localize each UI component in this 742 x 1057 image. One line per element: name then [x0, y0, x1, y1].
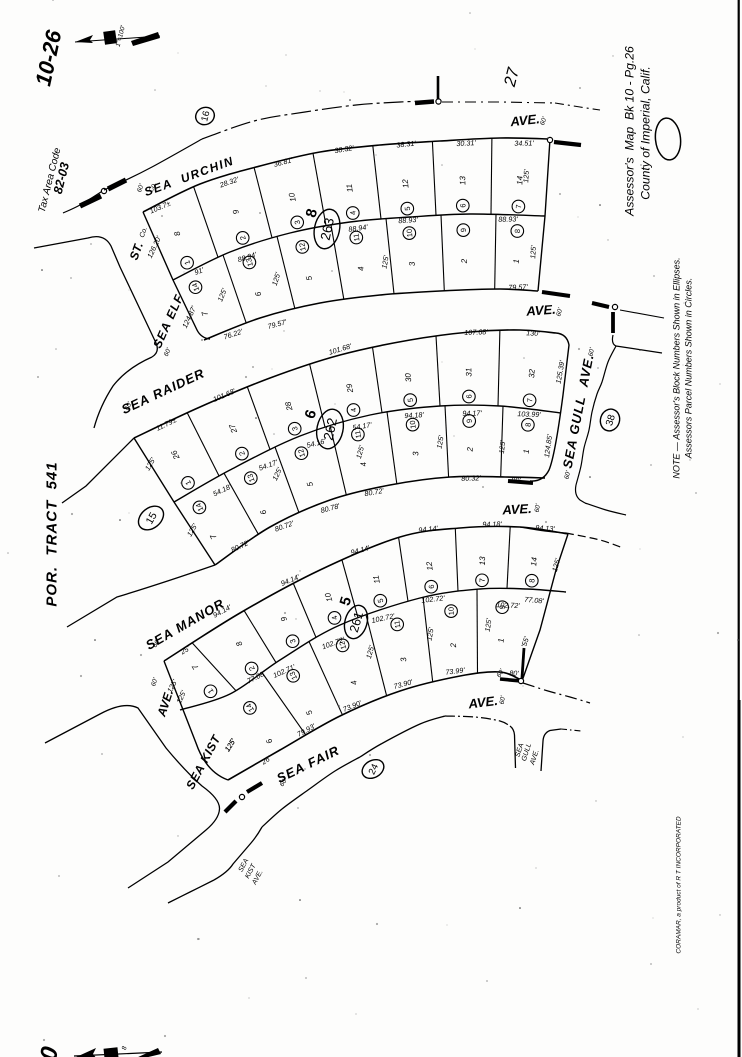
- svg-text:11: 11: [392, 620, 402, 629]
- svg-text:94.17': 94.17': [462, 408, 482, 417]
- svg-text:6: 6: [465, 394, 474, 398]
- svg-text:7: 7: [525, 398, 534, 403]
- svg-text:7: 7: [478, 578, 487, 582]
- svg-text:77.08': 77.08': [524, 595, 545, 606]
- svg-text:CORAMAR, a product of R T INCO: CORAMAR, a product of R T INCORPORATED: [675, 816, 682, 953]
- svg-text:12: 12: [297, 242, 307, 252]
- svg-text:79.57': 79.57': [508, 282, 528, 292]
- svg-text:11: 11: [371, 574, 381, 584]
- svg-text:94.13': 94.13': [535, 523, 556, 533]
- svg-text:88.93': 88.93': [498, 214, 518, 223]
- svg-text:7: 7: [514, 204, 523, 209]
- svg-text:6: 6: [427, 584, 436, 589]
- svg-text:AVE.: AVE.: [509, 111, 541, 129]
- svg-text:32: 32: [527, 368, 537, 378]
- svg-text:10: 10: [405, 229, 415, 238]
- svg-text:125': 125': [528, 244, 538, 259]
- svg-text:130': 130': [526, 328, 540, 338]
- svg-text:31: 31: [464, 368, 473, 377]
- svg-text:11: 11: [345, 183, 355, 192]
- svg-text:30: 30: [403, 372, 413, 382]
- svg-text:POR. TRACT 541: POR. TRACT 541: [43, 461, 60, 606]
- svg-text:10: 10: [408, 420, 418, 429]
- svg-text:AVE.: AVE.: [501, 501, 532, 518]
- svg-text:6: 6: [458, 203, 467, 207]
- svg-text:NOTE — Assessor's Block Number: NOTE — Assessor's Block Numbers Shown in…: [671, 257, 681, 478]
- svg-text:90': 90': [511, 476, 521, 485]
- svg-text:125': 125': [497, 439, 507, 454]
- svg-text:10: 10: [447, 607, 456, 616]
- svg-text:80.32': 80.32': [461, 473, 481, 483]
- svg-text:8: 8: [527, 578, 536, 583]
- svg-text:103.99': 103.99': [517, 409, 541, 419]
- svg-text:102.72': 102.72': [496, 600, 520, 610]
- svg-text:12: 12: [425, 561, 435, 571]
- svg-text:107.68': 107.68': [464, 327, 488, 337]
- svg-text:94.18': 94.18': [404, 410, 424, 420]
- svg-text:125': 125': [521, 168, 531, 183]
- svg-text:14: 14: [529, 556, 539, 566]
- svg-text:5: 5: [406, 398, 415, 403]
- svg-text:8: 8: [523, 422, 532, 427]
- svg-text:125': 125': [483, 617, 494, 632]
- svg-text:12: 12: [401, 178, 411, 188]
- svg-text:1: 1: [496, 638, 505, 643]
- svg-text:Assessors Parcel Numbers Shown: Assessors Parcel Numbers Shown in Circle…: [683, 278, 693, 460]
- svg-text:94.18': 94.18': [482, 519, 502, 528]
- svg-text:Assessor's Map Bk 10 - Pg.26: Assessor's Map Bk 10 - Pg.26: [622, 46, 636, 217]
- svg-text:County of Imperial, Calif.: County of Imperial, Calif.: [638, 66, 652, 199]
- svg-text:9: 9: [459, 228, 468, 232]
- svg-text:88.93': 88.93': [398, 215, 419, 225]
- svg-text:8: 8: [513, 229, 522, 234]
- svg-text:30.31': 30.31': [456, 138, 476, 148]
- svg-text:2: 2: [460, 258, 469, 264]
- svg-text:5: 5: [403, 206, 412, 211]
- svg-text:2: 2: [466, 446, 475, 452]
- svg-text:1: 1: [522, 449, 531, 454]
- svg-text:13: 13: [478, 556, 487, 565]
- svg-text:AVE.: AVE.: [525, 302, 556, 319]
- svg-text:11: 11: [351, 233, 361, 242]
- svg-text:34.51': 34.51': [514, 138, 534, 147]
- svg-text:1: 1: [512, 259, 521, 264]
- svg-text:80': 80': [509, 668, 519, 678]
- svg-text:13: 13: [458, 176, 467, 186]
- svg-text:9: 9: [465, 419, 474, 423]
